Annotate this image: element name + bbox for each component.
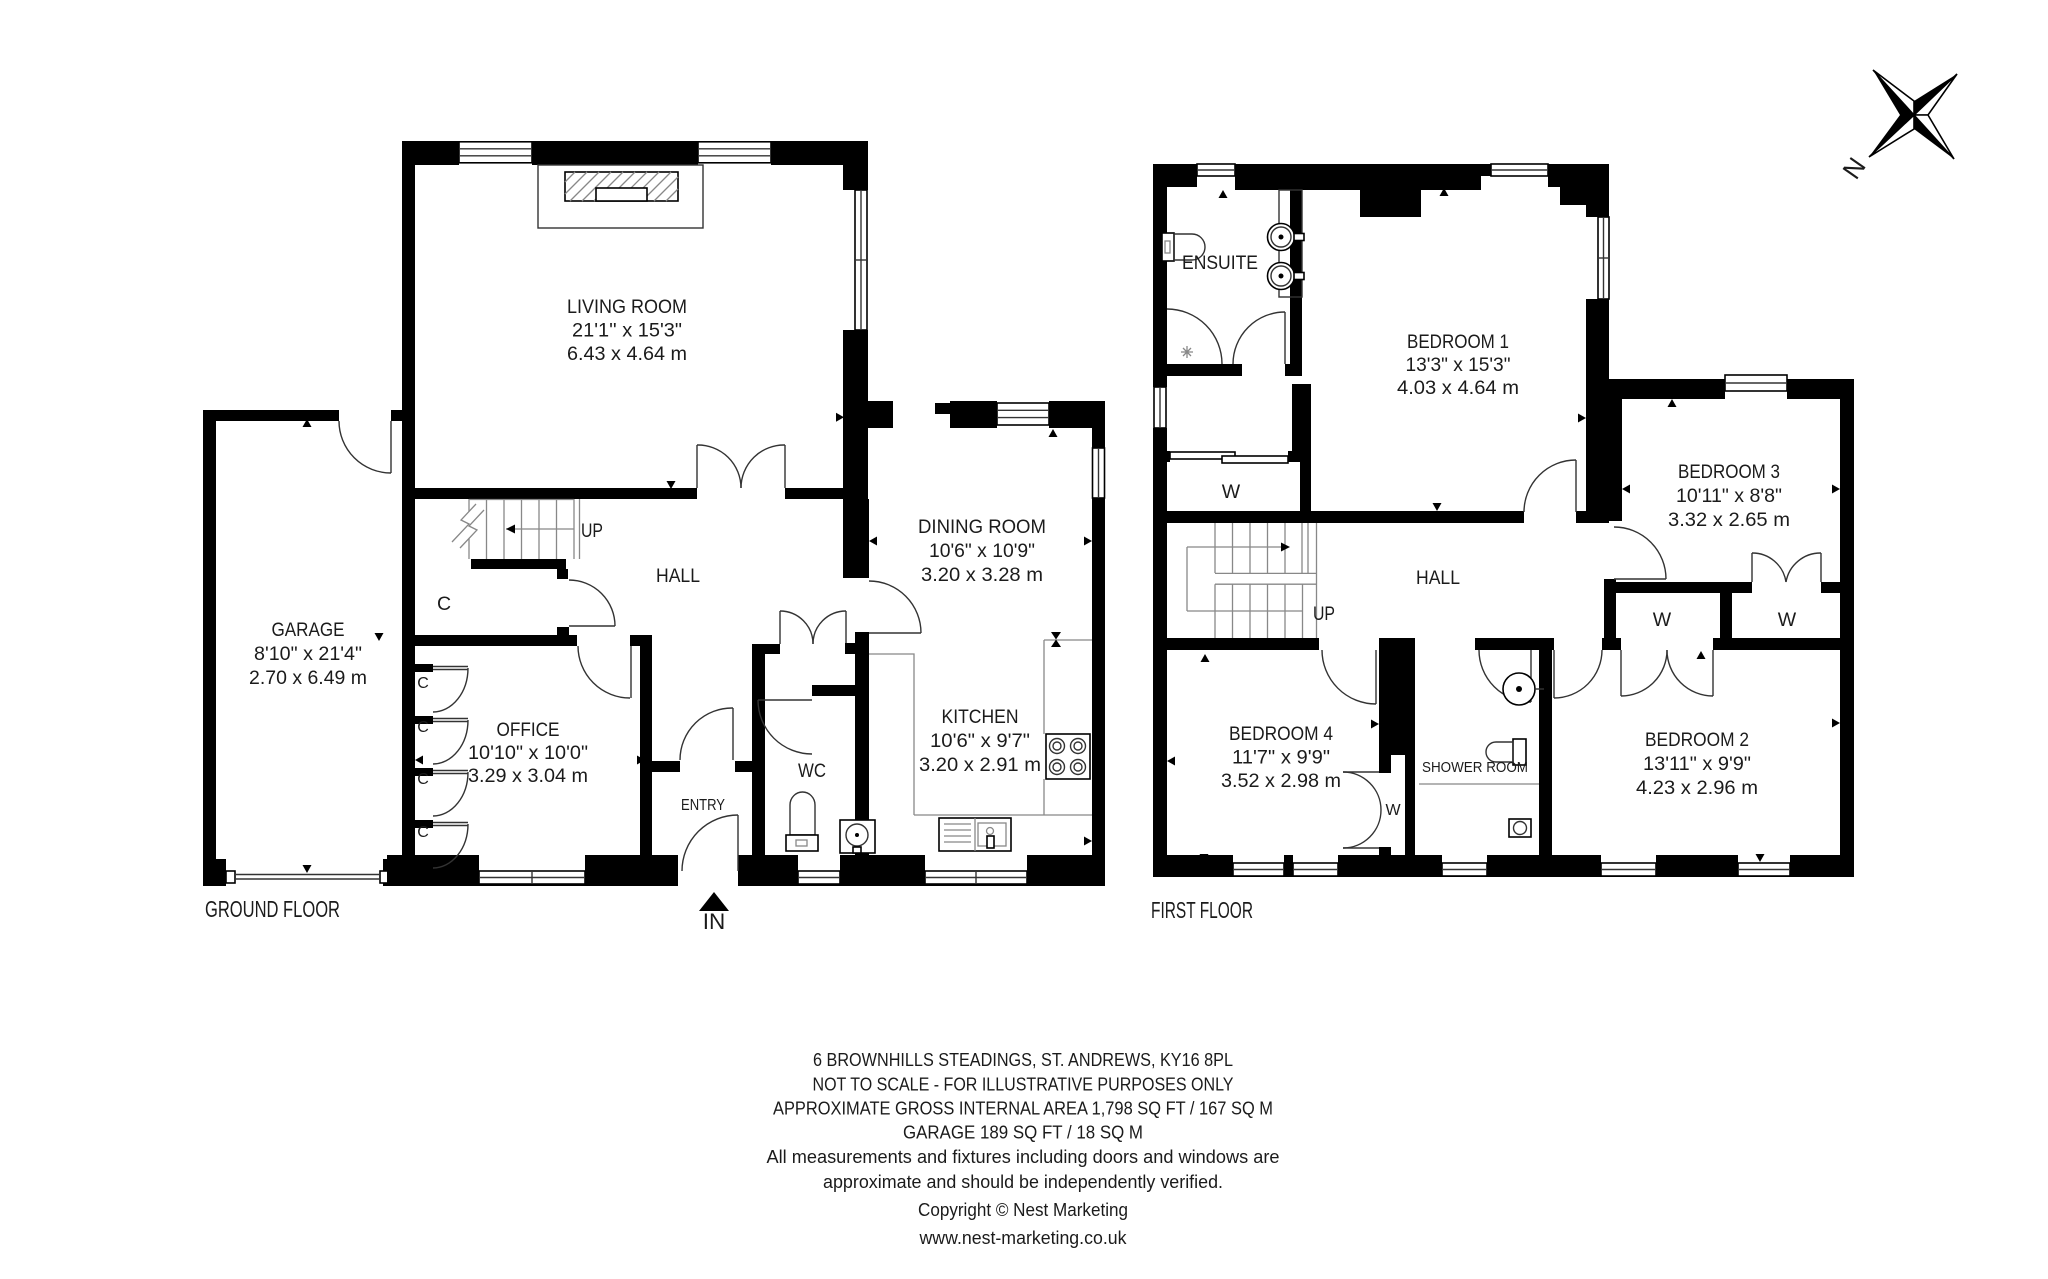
- svg-text:C: C: [417, 771, 429, 788]
- svg-text:HALL: HALL: [656, 565, 700, 587]
- svg-text:NOT TO SCALE - FOR ILLUSTRATIV: NOT TO SCALE - FOR ILLUSTRATIVE PURPOSES…: [813, 1074, 1234, 1095]
- svg-text:W: W: [1222, 481, 1241, 503]
- svg-text:UP: UP: [581, 520, 603, 542]
- svg-text:W: W: [1653, 609, 1672, 631]
- svg-text:13'3" x 15'3": 13'3" x 15'3": [1406, 354, 1511, 376]
- svg-text:WC: WC: [798, 760, 826, 782]
- svg-text:IN: IN: [703, 909, 726, 934]
- svg-text:C: C: [417, 675, 429, 692]
- svg-text:UP: UP: [1313, 603, 1335, 625]
- svg-text:6 BROWNHILLS STEADINGS, ST. AN: 6 BROWNHILLS STEADINGS, ST. ANDREWS, KY1…: [813, 1049, 1233, 1070]
- svg-text:11'7" x 9'9": 11'7" x 9'9": [1232, 747, 1330, 769]
- svg-text:BEDROOM 4: BEDROOM 4: [1229, 723, 1333, 745]
- svg-text:10'10" x 10'0": 10'10" x 10'0": [468, 742, 588, 764]
- svg-text:4.23 x 2.96 m: 4.23 x 2.96 m: [1636, 777, 1758, 799]
- svg-text:www.nest-marketing.co.uk: www.nest-marketing.co.uk: [919, 1227, 1128, 1248]
- svg-text:2.70 x 6.49 m: 2.70 x 6.49 m: [249, 667, 367, 689]
- svg-text:HALL: HALL: [1416, 567, 1460, 589]
- svg-text:GROUND FLOOR: GROUND FLOOR: [205, 896, 340, 922]
- svg-text:13'11" x 9'9": 13'11" x 9'9": [1643, 753, 1751, 775]
- svg-text:W: W: [1385, 802, 1401, 819]
- svg-text:10'6" x 10'9": 10'6" x 10'9": [929, 540, 1035, 562]
- svg-text:FIRST FLOOR: FIRST FLOOR: [1151, 897, 1253, 923]
- svg-text:6.43 x 4.64 m: 6.43 x 4.64 m: [567, 343, 687, 365]
- svg-text:APPROXIMATE GROSS INTERNAL ARE: APPROXIMATE GROSS INTERNAL AREA 1,798 SQ…: [773, 1098, 1273, 1119]
- svg-text:BEDROOM 1: BEDROOM 1: [1407, 331, 1509, 353]
- svg-text:ENTRY: ENTRY: [681, 797, 725, 814]
- svg-text:LIVING ROOM: LIVING ROOM: [567, 296, 687, 318]
- svg-text:All measurements and fixtures: All measurements and fixtures including …: [767, 1146, 1280, 1167]
- svg-text:C: C: [417, 719, 429, 736]
- svg-text:KITCHEN: KITCHEN: [942, 706, 1019, 728]
- svg-text:W: W: [1778, 609, 1797, 631]
- svg-text:10'6" x 9'7": 10'6" x 9'7": [930, 730, 1030, 752]
- svg-text:ENSUITE: ENSUITE: [1182, 252, 1258, 274]
- svg-text:Copyright © Nest Marketing: Copyright © Nest Marketing: [918, 1199, 1128, 1220]
- svg-text:3.20 x 2.91 m: 3.20 x 2.91 m: [919, 754, 1041, 776]
- svg-text:SHOWER ROOM: SHOWER ROOM: [1422, 759, 1528, 776]
- svg-text:BEDROOM 2: BEDROOM 2: [1645, 729, 1749, 751]
- svg-text:3.32 x 2.65 m: 3.32 x 2.65 m: [1668, 509, 1790, 531]
- svg-text:21'1'' x 15'3": 21'1'' x 15'3": [572, 320, 682, 342]
- svg-text:4.03 x 4.64 m: 4.03 x 4.64 m: [1397, 377, 1519, 399]
- svg-text:OFFICE: OFFICE: [497, 719, 560, 741]
- svg-text:8'10" x 21'4": 8'10" x 21'4": [254, 643, 362, 665]
- svg-text:3.29 x 3.04 m: 3.29 x 3.04 m: [468, 765, 588, 787]
- svg-text:C: C: [437, 593, 451, 615]
- svg-text:GARAGE: GARAGE: [272, 619, 345, 641]
- svg-text:GARAGE 189 SQ FT / 18 SQ M: GARAGE 189 SQ FT / 18 SQ M: [903, 1122, 1143, 1143]
- svg-text:3.52 x 2.98 m: 3.52 x 2.98 m: [1221, 770, 1341, 792]
- svg-text:BEDROOM 3: BEDROOM 3: [1678, 461, 1780, 483]
- svg-text:DINING ROOM: DINING ROOM: [918, 516, 1046, 538]
- svg-text:approximate and should be inde: approximate and should be independently …: [823, 1171, 1223, 1192]
- svg-text:3.20 x 3.28 m: 3.20 x 3.28 m: [921, 564, 1043, 586]
- svg-text:C: C: [417, 824, 429, 841]
- svg-text:10'11" x 8'8": 10'11" x 8'8": [1676, 485, 1782, 507]
